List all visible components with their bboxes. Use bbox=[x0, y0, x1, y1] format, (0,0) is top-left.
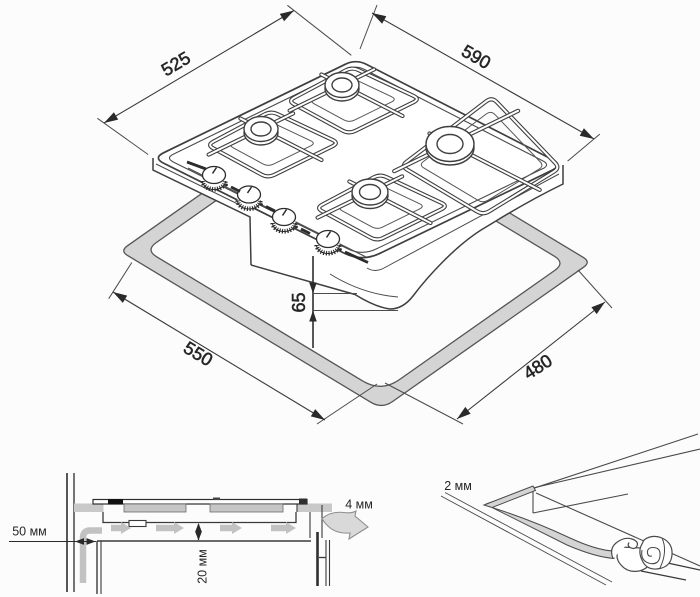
svg-text:20 мм: 20 мм bbox=[195, 549, 209, 584]
svg-text:50 мм: 50 мм bbox=[12, 524, 47, 538]
svg-text:2 мм: 2 мм bbox=[444, 479, 472, 493]
svg-text:4 мм: 4 мм bbox=[345, 497, 373, 511]
svg-text:65: 65 bbox=[289, 292, 309, 312]
